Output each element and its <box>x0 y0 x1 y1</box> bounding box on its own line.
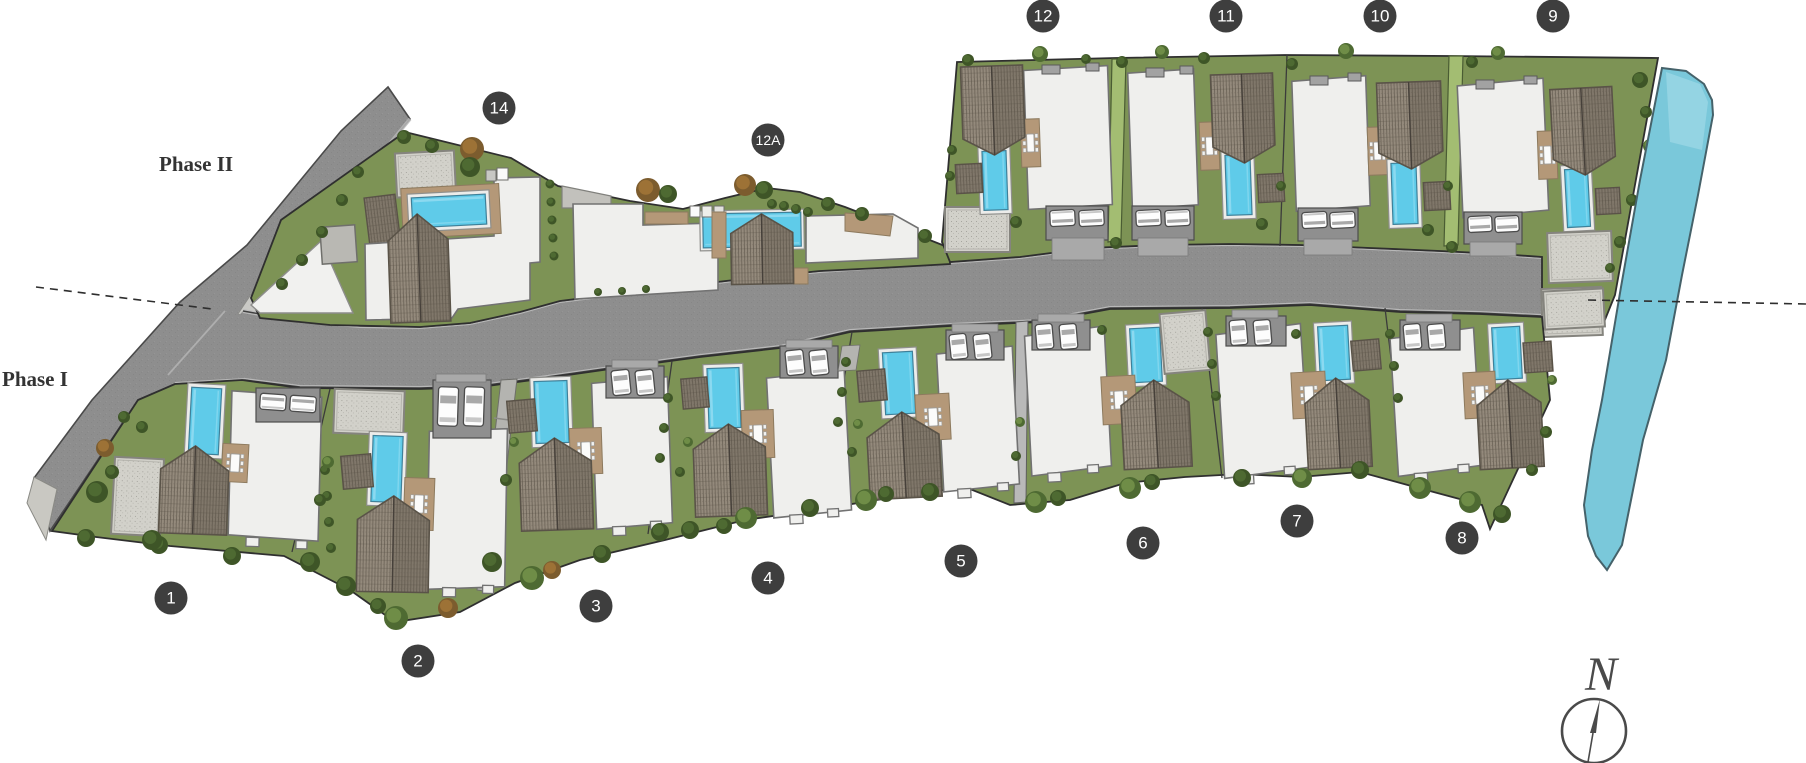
svg-text:4: 4 <box>763 569 772 588</box>
svg-text:11: 11 <box>1217 7 1235 26</box>
svg-text:1: 1 <box>166 589 175 608</box>
svg-text:5: 5 <box>956 552 965 571</box>
svg-text:12A: 12A <box>756 132 782 148</box>
svg-text:N: N <box>1584 648 1620 701</box>
svg-text:8: 8 <box>1457 529 1466 548</box>
svg-text:12: 12 <box>1034 7 1053 26</box>
svg-text:9: 9 <box>1548 7 1557 26</box>
svg-text:6: 6 <box>1138 534 1147 553</box>
svg-text:14: 14 <box>490 99 509 118</box>
svg-text:Phase I: Phase I <box>2 367 68 391</box>
svg-text:7: 7 <box>1292 512 1301 531</box>
svg-text:10: 10 <box>1371 7 1390 26</box>
svg-text:Phase II: Phase II <box>159 152 233 176</box>
svg-text:3: 3 <box>591 597 600 616</box>
svg-text:2: 2 <box>413 652 422 671</box>
